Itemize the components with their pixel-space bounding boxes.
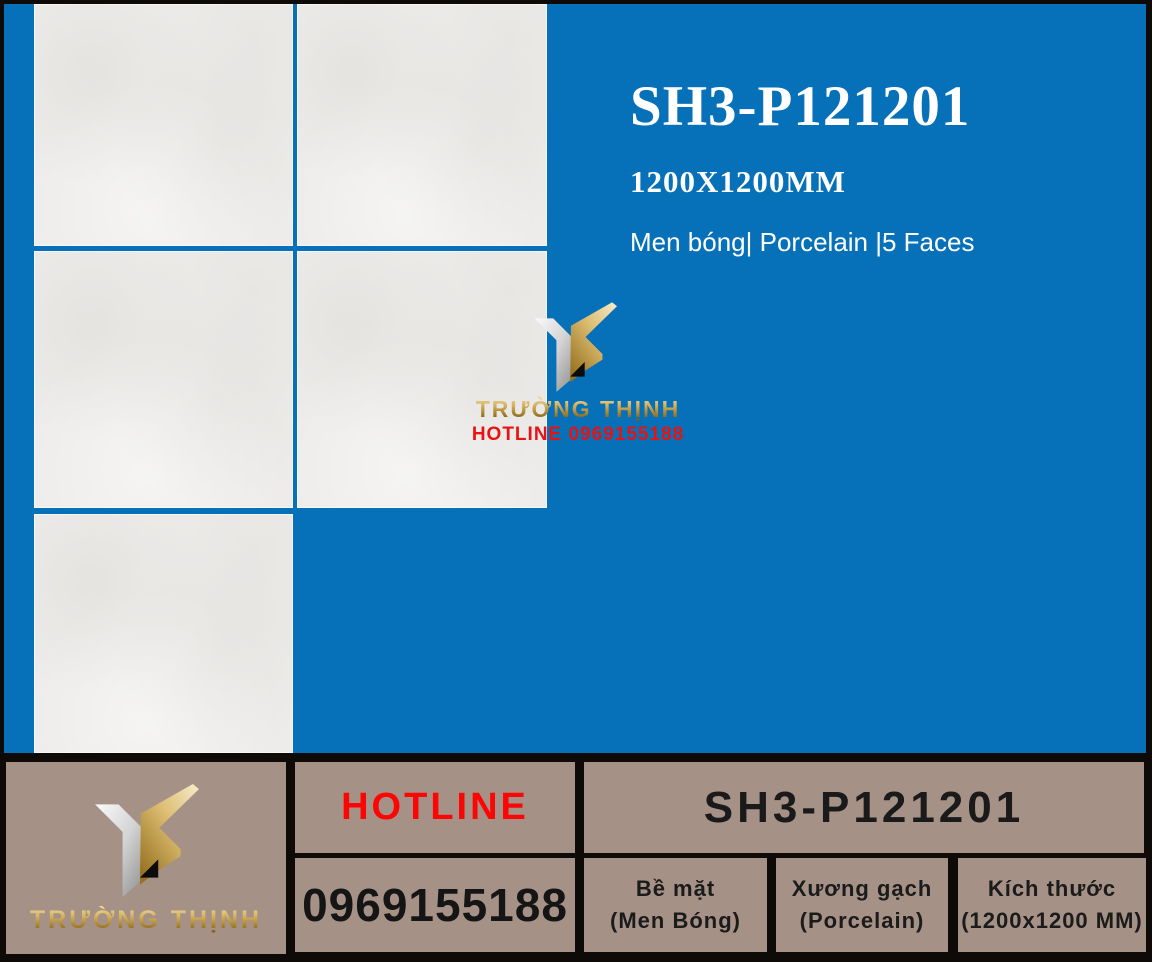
product-size: 1200X1200MM: [630, 166, 1140, 197]
phone-number: 0969155188: [302, 878, 568, 932]
brand-name: TRƯỜNG THỊNH: [30, 906, 262, 935]
spec-cell-dimension: Kích thước (1200x1200 MM): [958, 858, 1146, 952]
spec-cell-surface: Bề mặt (Men Bóng): [584, 858, 767, 952]
tile-swatch-3: [34, 251, 293, 508]
spec-value: (1200x1200 MM): [961, 910, 1143, 932]
brand-cell: TRƯỜNG THỊNH: [6, 762, 286, 954]
hotline-watermark: HOTLINE 0969155188: [458, 424, 698, 446]
tile-promo-card: SH3-P121201 1200X1200MM Men bóng| Porcel…: [0, 0, 1152, 962]
spec-table: TRƯỜNG THỊNH HOTLINE 0969155188 SH3-P121…: [0, 753, 1152, 962]
product-code-title: SH3-P121201: [630, 76, 1140, 138]
brand-logo-icon: [533, 302, 617, 393]
tile-swatch-4: [297, 251, 547, 508]
product-code: SH3-P121201: [704, 783, 1024, 833]
tile-swatch-5: [34, 514, 293, 753]
brand-name-watermark: TRƯỜNG THỊNH: [458, 396, 698, 422]
tile-swatch-2: [297, 4, 547, 246]
product-info-block: SH3-P121201 1200X1200MM Men bóng| Porcel…: [630, 76, 1140, 256]
brand-logo-icon: [93, 784, 199, 898]
spec-label: Bề mặt: [636, 878, 715, 900]
spec-value: (Porcelain): [800, 910, 925, 932]
spec-label: Kích thước: [988, 878, 1116, 900]
product-tagline: Men bóng| Porcelain |5 Faces: [630, 228, 1140, 256]
phone-cell: 0969155188: [295, 858, 575, 952]
spec-cell-body: Xương gạch (Porcelain): [776, 858, 948, 952]
product-code-cell: SH3-P121201: [584, 762, 1144, 853]
hotline-label-cell: HOTLINE: [295, 762, 575, 853]
hotline-label: HOTLINE: [341, 786, 529, 829]
spec-value: (Men Bóng): [610, 910, 741, 932]
spec-label: Xương gạch: [792, 878, 933, 900]
tile-swatch-1: [34, 4, 293, 246]
